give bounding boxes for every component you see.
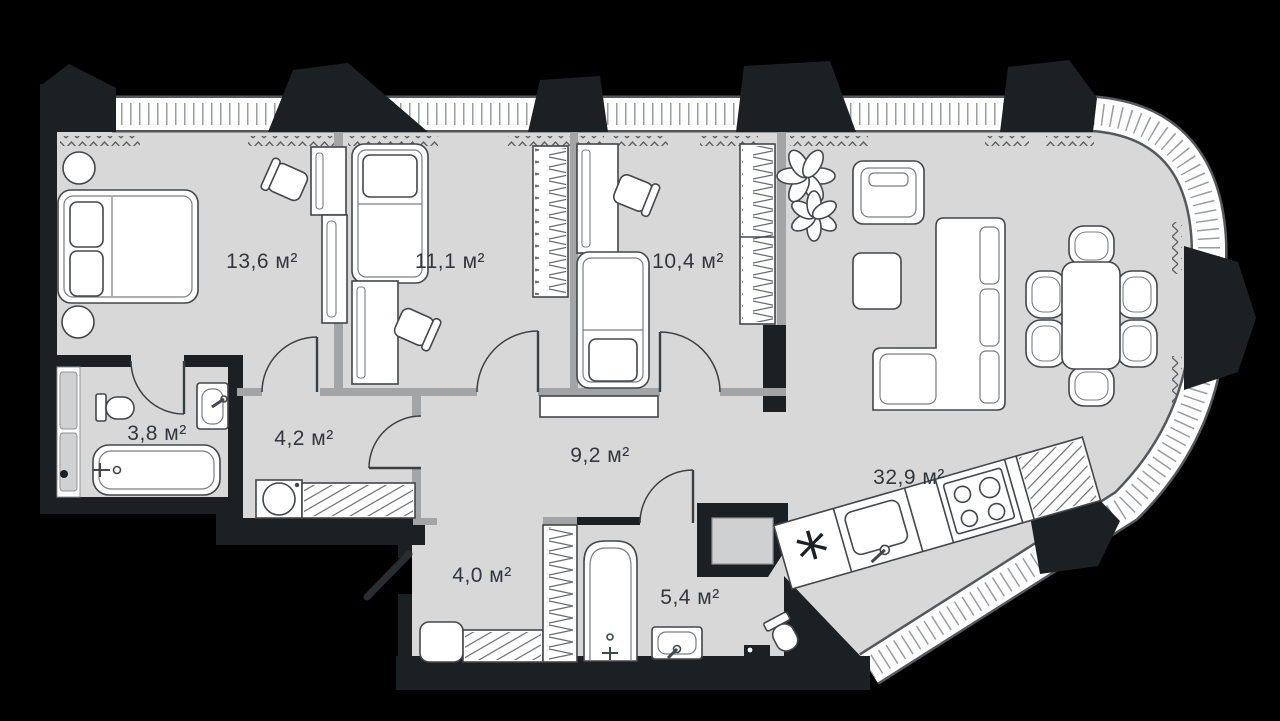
- desk-bedroom-3: [577, 144, 618, 253]
- room-label-bathroom-1: 3,8 м²: [127, 422, 186, 445]
- nightstand-bottom: [62, 306, 94, 338]
- armchair: [853, 161, 924, 224]
- duct-shaft-left: [57, 367, 80, 497]
- room-label-living-kitchen: 32,9 м²: [873, 466, 945, 489]
- bathtub-bathroom-1: [93, 445, 220, 495]
- floor-plan-page: *: [0, 0, 1280, 721]
- nightstand-top: [63, 152, 95, 184]
- single-bed-bedroom-3: [577, 252, 649, 388]
- pier-top-2: [528, 76, 608, 132]
- wardrobe-bathroom-strip: [543, 525, 577, 662]
- wardrobe-hallway-1: [302, 483, 415, 518]
- wardrobe-bedroom-1: [322, 215, 347, 323]
- room-label-bedroom-1: 13,6 м²: [226, 250, 298, 273]
- toilet-bathroom-1: [96, 394, 134, 421]
- corridor-console: [540, 396, 658, 417]
- coffee-table: [853, 253, 901, 309]
- desk-bedroom-2: [352, 281, 398, 384]
- shaft-dot: [60, 470, 68, 478]
- room-label-hallway-2: 4,0 м²: [452, 564, 511, 587]
- bathtub-bathroom-2: [584, 541, 637, 661]
- double-bed: [58, 190, 198, 303]
- room-label-bedroom-3: 10,4 м²: [652, 250, 724, 273]
- room-label-corridor: 9,2 м²: [570, 444, 629, 467]
- washbasin-bathroom-1: [197, 383, 228, 429]
- desk-bedroom-1: [311, 147, 346, 215]
- dining-table: [1062, 262, 1120, 369]
- room-label-hallway-1: 4,2 м²: [274, 427, 333, 450]
- floor-plan: *: [0, 0, 1280, 721]
- room-label-bathroom-2: 5,4 м²: [660, 586, 719, 609]
- room-label-bedroom-2: 11,1 м²: [415, 250, 485, 273]
- washbasin-bathroom-2: [652, 627, 702, 659]
- wardrobe-bedroom-3: [740, 144, 775, 324]
- bench-hallway-2: [420, 622, 463, 662]
- washing-machine-icon: [256, 480, 302, 518]
- duct-shaft-kitchen: [697, 503, 788, 577]
- wardrobe-bedroom-2: [533, 146, 568, 297]
- appliance-box: [744, 645, 770, 662]
- shoe-rack-hallway-2: [463, 630, 543, 662]
